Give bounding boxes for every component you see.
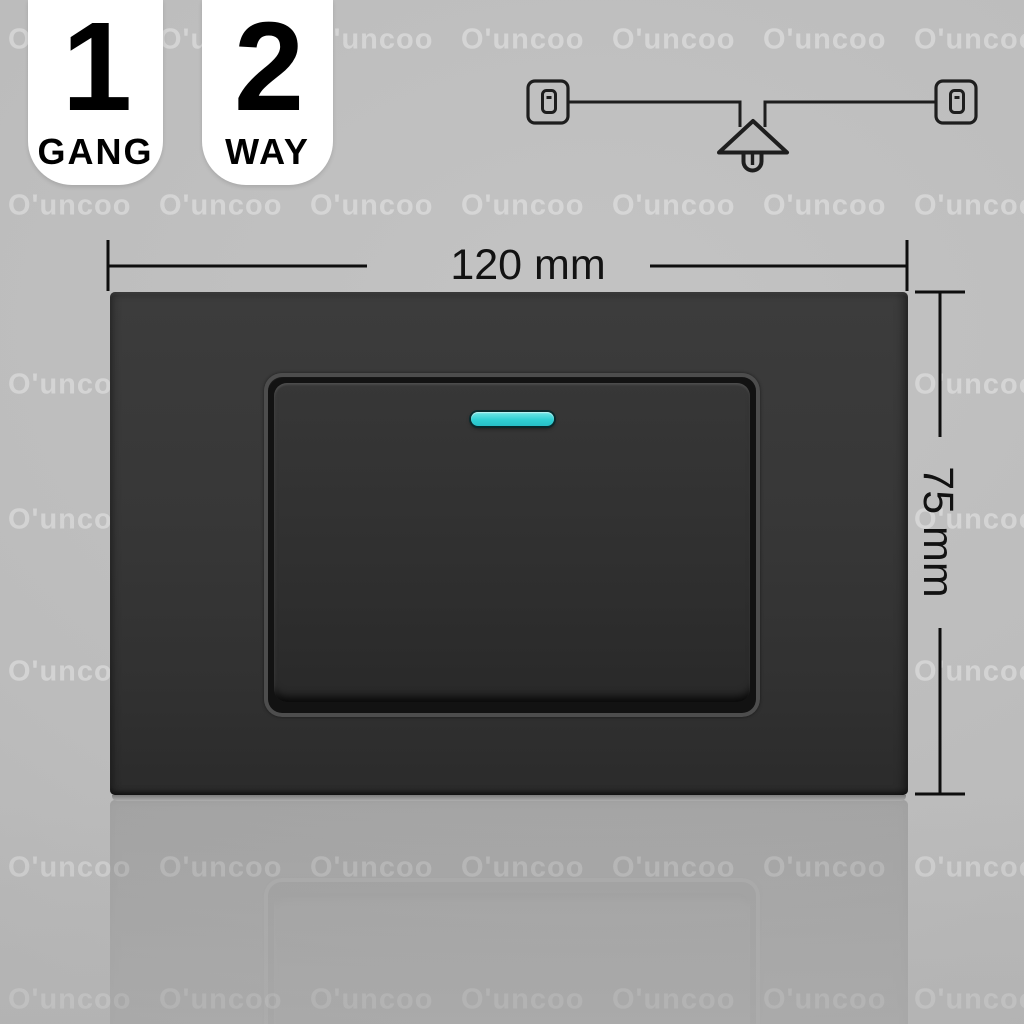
led-indicator [471, 412, 554, 426]
plate-reflection-image [110, 800, 908, 1024]
product-image-stage: O'uncooO'uncooO'uncooO'uncooO'uncooO'unc… [0, 0, 1024, 1024]
watermark-text: O'uncoo [612, 24, 735, 57]
badge-label: GANG [28, 131, 163, 173]
watermark-text: O'uncoo [8, 190, 131, 223]
badge-2-way: 2 WAY [202, 0, 333, 185]
plate-reflection [110, 800, 908, 1024]
height-dimension-label: 75 mm [912, 432, 964, 632]
rocker-reflection [274, 893, 750, 1024]
watermark-text: O'uncoo [914, 369, 1024, 402]
badge-number: 2 [202, 4, 333, 130]
watermark-text: O'uncoo [914, 24, 1024, 57]
watermark-text: O'uncoo [914, 852, 1024, 885]
rocker-frame [264, 373, 760, 717]
watermark-text: O'uncoo [914, 984, 1024, 1017]
switch-plate [110, 292, 908, 795]
rocker-frame-reflection [264, 878, 760, 1024]
width-dimension-label: 120 mm [408, 241, 648, 290]
badge-1-gang: 1 GANG [28, 0, 163, 185]
plate-bottom-edge [112, 795, 906, 801]
watermark-text: O'uncoo [763, 24, 886, 57]
badge-number: 1 [28, 4, 163, 130]
rocker-button [274, 383, 750, 702]
watermark-text: O'uncoo [159, 190, 282, 223]
watermark-text: O'uncoo [914, 190, 1024, 223]
watermark-text: O'uncoo [763, 190, 886, 223]
badge-label: WAY [202, 131, 333, 173]
watermark-text: O'uncoo [461, 190, 584, 223]
watermark-text: O'uncoo [612, 190, 735, 223]
watermark-text: O'uncoo [461, 24, 584, 57]
watermark-text: O'uncoo [914, 656, 1024, 689]
watermark-text: O'uncoo [310, 190, 433, 223]
